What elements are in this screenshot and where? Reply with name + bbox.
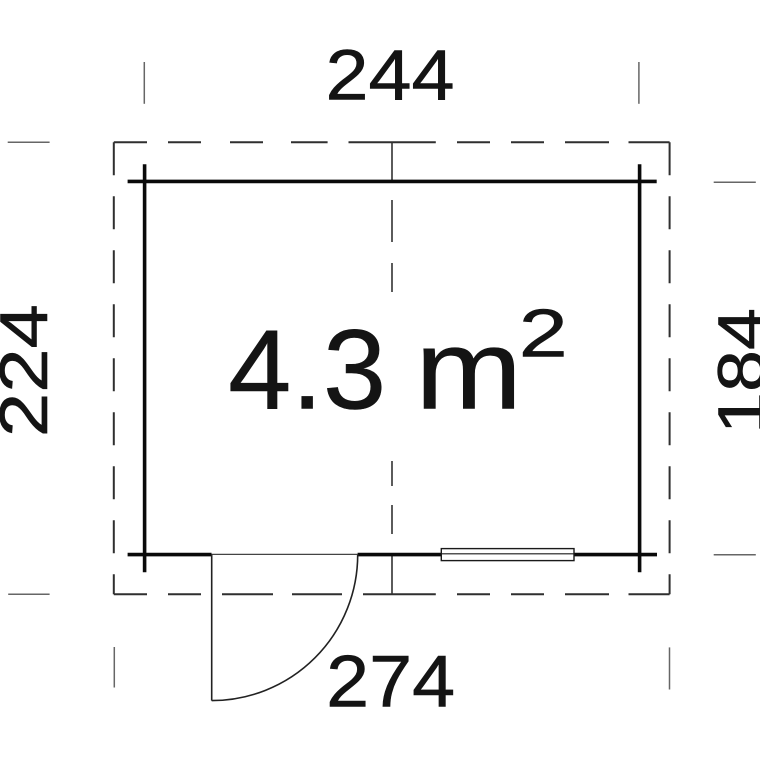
- svg-text:244: 244: [326, 37, 455, 116]
- svg-text:224: 224: [0, 304, 62, 437]
- svg-text:2: 2: [519, 296, 568, 372]
- svg-text:274: 274: [326, 641, 455, 722]
- svg-text:4.3: 4.3: [228, 307, 386, 433]
- svg-text:m: m: [415, 307, 522, 433]
- svg-text:184: 184: [705, 308, 760, 434]
